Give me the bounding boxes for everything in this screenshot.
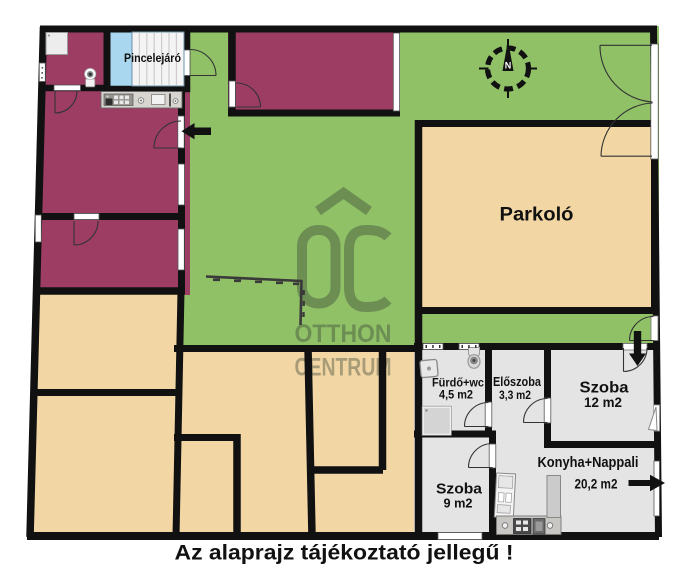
svg-text:20,2 m2: 20,2 m2 <box>575 477 618 492</box>
svg-text:Az alaprajz tájékoztató jelleg: Az alaprajz tájékoztató jellegű ! <box>175 542 514 565</box>
svg-text:Előszoba: Előszoba <box>493 375 542 389</box>
svg-text:Konyha+Nappali: Konyha+Nappali <box>538 454 639 471</box>
svg-text:Parkoló: Parkoló <box>500 204 574 226</box>
svg-text:12 m2: 12 m2 <box>584 394 622 410</box>
svg-text:3,3 m2: 3,3 m2 <box>499 388 531 402</box>
svg-text:OTTHON: OTTHON <box>295 320 392 348</box>
svg-text:9 m2: 9 m2 <box>444 496 473 511</box>
svg-text:4,5 m2: 4,5 m2 <box>439 388 473 402</box>
svg-text:Pincelejáró: Pincelejáró <box>124 53 181 65</box>
svg-text:N: N <box>505 61 512 71</box>
